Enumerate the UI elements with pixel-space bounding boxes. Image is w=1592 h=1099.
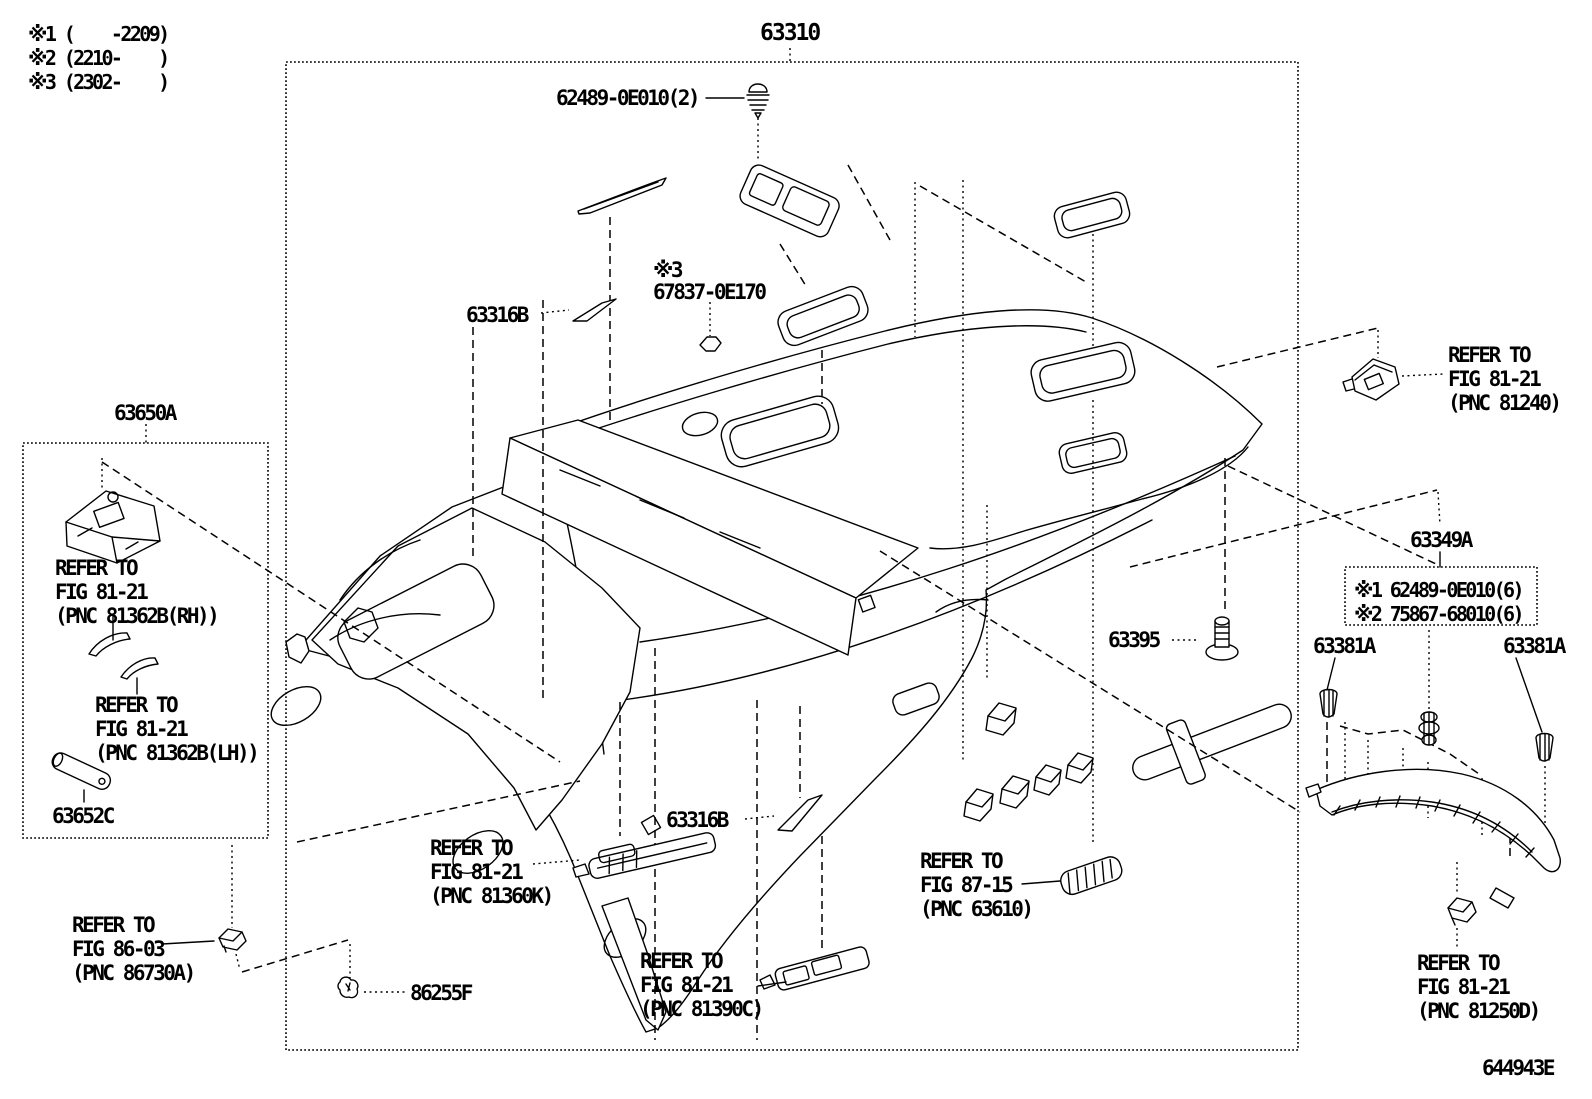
rear-trim-63349-icon: [1306, 769, 1560, 908]
vent-grille-63610-icon: [1058, 854, 1124, 897]
label-63650A: 63650A: [114, 401, 175, 425]
ref-63610: REFER TO FIG 87-15 (PNC 63610): [920, 849, 1032, 921]
label-62489-0E010: 62489-0E010(2): [556, 86, 698, 110]
ref-81362B-RH: REFER TO FIG 81-21 (PNC 81362B(RH)): [55, 556, 217, 628]
clip-86730-icon: [219, 929, 246, 952]
ref-81360K: REFER TO FIG 81-21 (PNC 81360K): [430, 836, 552, 908]
grip-rail: [1122, 682, 1302, 802]
label-86255F: 86255F: [410, 981, 471, 1005]
clip-81250-icon: [1448, 898, 1476, 925]
label-63316B-2: 63316B: [666, 808, 727, 832]
parts-diagram-page: ※1 ( -2209) ※2 (2210- ) ※3 (2302- ) 6331…: [0, 0, 1592, 1099]
screw-63395-icon: [1206, 617, 1238, 660]
revision-notes: ※1 ( -2209) ※2 (2210- ) ※3 (2302- ): [28, 22, 168, 94]
visor-bracket-rh-icon: [89, 633, 130, 656]
label-63395: 63395: [1108, 628, 1159, 652]
ref-86730A: REFER TO FIG 86-03 (PNC 86730A): [72, 913, 194, 985]
maplight-assembly-box: [23, 443, 268, 838]
ref-81250D: REFER TO FIG 81-21 (PNC 81250D): [1417, 951, 1539, 1023]
ref-81362B-LH: REFER TO FIG 81-21 (PNC 81362B(LH)): [95, 693, 257, 765]
visor-bracket-lh-icon: [121, 658, 158, 679]
clip-86255-icon: [338, 977, 358, 997]
label-63652C: 63652C: [52, 804, 113, 828]
overhead-console-icon: [737, 162, 842, 239]
visor-holder-81390-icon: [760, 946, 870, 992]
ref-81390C: REFER TO FIG 81-21 (PNC 81390C): [640, 949, 762, 1021]
ref-81240: REFER TO FIG 81-21 (PNC 81240): [1448, 343, 1560, 415]
lamp-81240-icon: [1343, 359, 1399, 400]
label-63349A: 63349A: [1410, 528, 1471, 552]
clip-63381-right-icon: [1536, 734, 1553, 762]
label-67837-0E170: ※3 67837-0E170: [653, 259, 765, 303]
map-light-unit-icon: [66, 491, 160, 563]
clip-63381-left-icon: [1320, 690, 1337, 718]
label-63381A-left: 63381A: [1313, 634, 1374, 658]
drawing-code: 644943E: [1482, 1056, 1553, 1080]
clip-part-notes: ※1 62489-0E010(6) ※2 75867-68010(6): [1354, 578, 1522, 626]
diagram-line-art: [0, 0, 1592, 1099]
visor-rail-strip-icon: [578, 178, 666, 214]
clip-spacer-row: [964, 703, 1093, 821]
clip-62489-icon: [747, 84, 769, 118]
clip-67837-icon: [700, 337, 721, 351]
label-63381A-right: 63381A: [1503, 634, 1564, 658]
grommet-clip-icon: [1419, 712, 1439, 745]
label-63310: 63310: [760, 21, 819, 45]
label-63316B-1: 63316B: [466, 303, 527, 327]
opening-trim-rear-icon: [1052, 190, 1132, 240]
